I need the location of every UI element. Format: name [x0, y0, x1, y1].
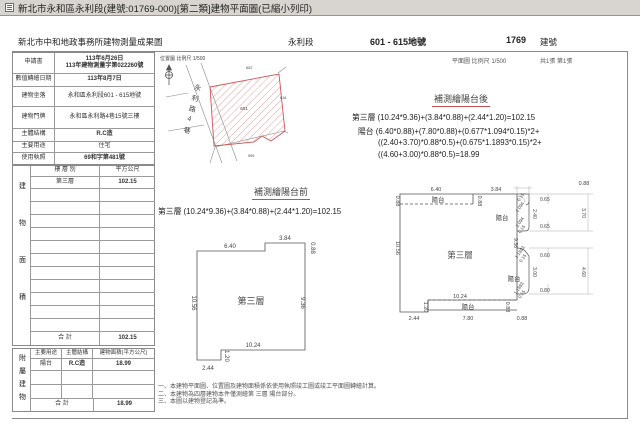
sheet-count: 共1張 第1張	[540, 56, 572, 65]
location-map: 位置圖 比例尺 1/500 601 602 616 599	[158, 53, 288, 165]
total-accessory-value: 18.99	[94, 399, 155, 411]
window-title-bar: 新北市永和區永利段(建號:01769-000)[第二類]建物平面圖(已縮小列印)	[0, 0, 640, 16]
dim: 10.24	[453, 294, 467, 300]
info-label: 主體結構	[13, 129, 55, 141]
total-label: 合 計	[31, 399, 94, 411]
info-label: 建物坐落	[13, 87, 55, 106]
floor-area-value: 102.15	[100, 177, 155, 188]
note-line: 二、本建物為四層建物本件僅測繪第 三層 陽台部分。	[158, 392, 380, 400]
accessory-structure: R.C造	[62, 359, 93, 370]
section-name: 永利段	[288, 36, 314, 48]
dim: 9.36	[512, 238, 518, 248]
dim: 0.88	[476, 196, 482, 207]
total-area-value: 102.15	[100, 332, 155, 345]
balcony-label: 陽台	[432, 195, 445, 204]
info-value: 69和字第481號	[55, 153, 154, 164]
floor-label: 第三層	[447, 250, 473, 260]
balcony-label: 陽台	[462, 302, 475, 311]
parcel-number: 601	[240, 106, 248, 111]
dim: 3.84	[491, 187, 502, 193]
dim: 0.88	[394, 196, 400, 207]
after-formula-balcony-3: ((4.60+3.00)*0.88*0.5)=18.99	[378, 150, 479, 159]
balcony-label: 陽台	[496, 213, 509, 222]
dim: 2.44	[409, 316, 420, 322]
neighbor-lot-number: 616	[280, 96, 286, 100]
dim: 0.65	[540, 197, 550, 203]
floor-area-table: 建物面積 樓 層 別 平方公尺 第三層 102.15 合 計 102	[12, 165, 155, 346]
column-header-use: 主要用途	[31, 349, 62, 358]
dim: 1.094	[514, 201, 525, 213]
office-title: 新北市中和地政事務所建物測量成果圖	[18, 36, 163, 48]
before-formula-floor: 第三層 (10.24*9.36)+(3.84*0.88)+(2.44*1.20)…	[158, 206, 341, 217]
column-header-sqm: 平方公尺	[100, 166, 155, 176]
info-value: R.C造	[55, 129, 154, 141]
plan-scale-caption: 平面圖 比例尺 1/500	[452, 56, 506, 65]
floor-plan-after: 0.88 6.40 3.84 陽台 0.88 0.88 陽台 0.15 1.09…	[388, 160, 638, 345]
accessory-side-label: 附屬建物	[13, 349, 31, 411]
dim: 6.40	[431, 187, 442, 193]
after-formula-balcony-2: ((2.40+3.70)*0.88*0.5)+(0.675*1.1893*0.1…	[378, 138, 542, 147]
info-label: 使用執照	[13, 153, 55, 164]
dim: 3.84	[279, 236, 291, 242]
table-row: 建物坐落 永和區永利段601 - 615地號	[13, 87, 154, 107]
table-row: 使用執照 69和字第481號	[13, 153, 154, 164]
column-header-structure: 主體結構	[62, 349, 93, 358]
dim: 2.44	[202, 366, 214, 372]
note-line: 一、本建物平面圖、位置圖及建物面積係依使用執照竣工圖或竣工平面圖轉繪計算。	[158, 384, 380, 392]
lot-numbers: 601 - 615地號	[370, 35, 426, 48]
dim: 10.24	[245, 343, 261, 349]
north-arrow-icon	[165, 65, 173, 85]
total-label: 合 計	[31, 332, 100, 345]
building-number-label: 建號	[540, 36, 557, 48]
dim: 0.88	[579, 181, 590, 187]
document-icon	[5, 3, 14, 12]
note-line: 三、本圖以建物登記為準。	[158, 399, 380, 407]
floor-area-side-label: 建物面積	[13, 166, 31, 345]
neighbor-lot-number: 602	[246, 66, 252, 70]
dim: 4.60	[580, 267, 586, 277]
after-survey-title: 補測繪陽台後	[432, 92, 490, 107]
dim: 3.00	[531, 267, 537, 277]
dim: 9.36	[299, 297, 305, 309]
dim: 1.20	[422, 302, 428, 313]
info-label: 申請書	[13, 53, 55, 73]
table-row: 申請書 113年6月26日 113年建物測量字第022260號	[13, 53, 154, 74]
table-row: 建物門牌 永和區永利路4巷15號三樓	[13, 107, 154, 129]
neighbor-lot-number: 599	[248, 154, 254, 158]
dim: 0.15	[516, 192, 525, 202]
dim: 0.88	[504, 302, 510, 313]
dim: 2.40	[531, 209, 537, 219]
dim: 0.88	[517, 316, 528, 322]
info-value: 永和區永利路4巷15號三樓	[55, 107, 154, 128]
dim: 10.56	[394, 241, 400, 255]
accessory-area-value: 18.99	[93, 359, 154, 370]
after-formula-floor: 第三層 (10.24*9.36)+(3.84*0.88)+(2.44*1.20)…	[352, 112, 535, 123]
dim: 0.88	[309, 242, 315, 254]
after-formula-balcony-1: 陽台 (6.40*0.88)+(7.80*0.88)+(0.677*1.094*…	[358, 126, 539, 137]
floor-label: 第三層	[237, 295, 264, 306]
window-title: 新北市永和區永利段(建號:01769-000)[第二類]建物平面圖(已縮小列印)	[18, 1, 312, 15]
building-info-table: 申請書 113年6月26日 113年建物測量字第022260號 數值轉繪日期 1…	[12, 52, 155, 165]
dim: 0.60	[540, 253, 550, 259]
building-number: 1769	[506, 35, 526, 45]
table-row: 數值轉繪日期 113年8月7日	[13, 74, 154, 87]
balcony-label: 陽台	[508, 274, 521, 283]
table-row: 主要用途 住宅	[13, 142, 154, 153]
dim: 0.80	[540, 288, 550, 294]
document-page: 新北市永和區永利段(建號:01769-000)[第二類]建物平面圖(已縮小列印)…	[0, 0, 640, 426]
dim: 3.70	[580, 208, 586, 218]
info-value: 永和區永利段601 - 615地號	[55, 87, 154, 106]
info-value: 113年8月7日	[55, 74, 154, 86]
dim: 10.56	[190, 295, 196, 311]
column-header-area: 建物面積(平方公尺)	[93, 349, 154, 358]
accessory-building-table: 附屬建物 主要用途 主體結構 建物面積(平方公尺) 陽台 R.C造 18.99 …	[12, 348, 155, 412]
info-label: 數值轉繪日期	[13, 74, 55, 86]
info-value: 住宅	[55, 142, 154, 152]
info-label: 建物門牌	[13, 107, 55, 128]
dim: 6.40	[224, 244, 236, 250]
bottom-border	[12, 418, 628, 419]
dim: 0.65	[540, 224, 550, 230]
info-value: 113年6月26日 113年建物測量字第022260號	[55, 53, 154, 73]
notes-block: 一、本建物平面圖、位置圖及建物面積係依使用執照竣工圖或竣工平面圖轉繪計算。 二、…	[158, 384, 380, 407]
dim: 7.80	[463, 316, 474, 322]
accessory-use: 陽台	[31, 359, 62, 370]
dim: 1.20	[223, 350, 229, 362]
floor-plan-before: 6.40 3.84 0.88 10.56 第三層 9.36 10.24 1.20…	[158, 218, 328, 383]
table-row: 主體結構 R.C造	[13, 129, 154, 142]
before-survey-title: 補測繪陽台前	[252, 185, 310, 200]
column-header-floor: 樓 層 別	[31, 166, 100, 176]
map-caption: 位置圖 比例尺 1/500	[160, 55, 206, 62]
floor-name: 第三層	[31, 177, 100, 188]
info-label: 主要用途	[13, 142, 55, 152]
